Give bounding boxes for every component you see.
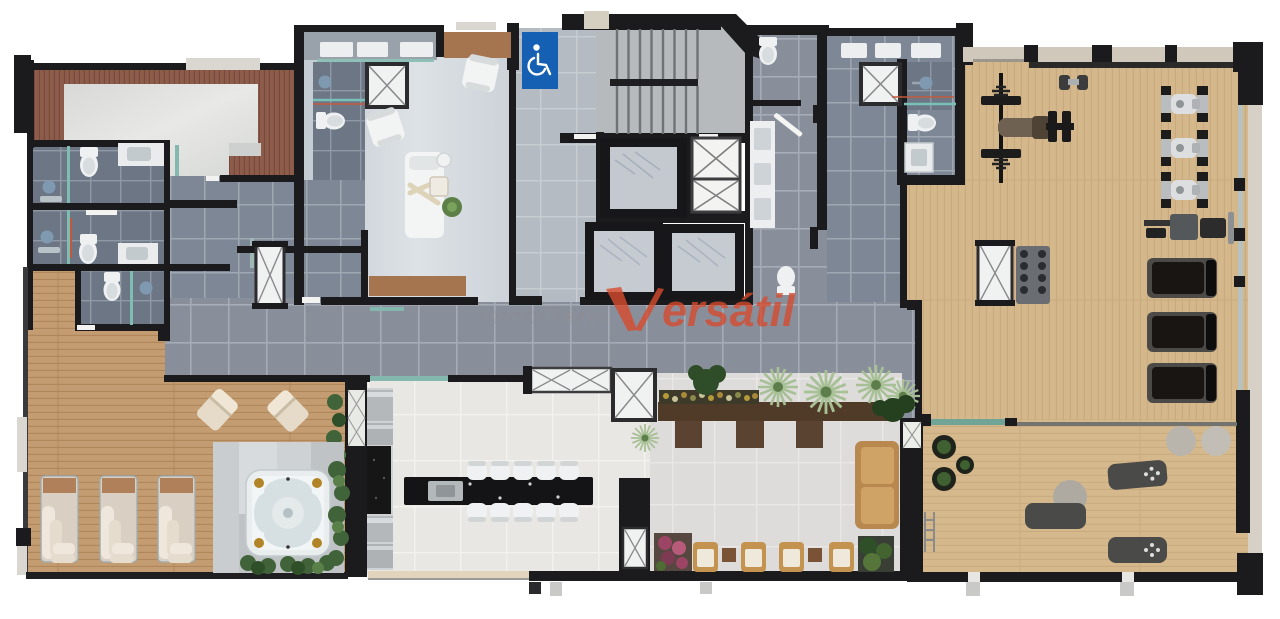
svg-text:Imobiliária: Imobiliária — [478, 303, 609, 330]
svg-text:ersátil: ersátil — [662, 285, 796, 336]
